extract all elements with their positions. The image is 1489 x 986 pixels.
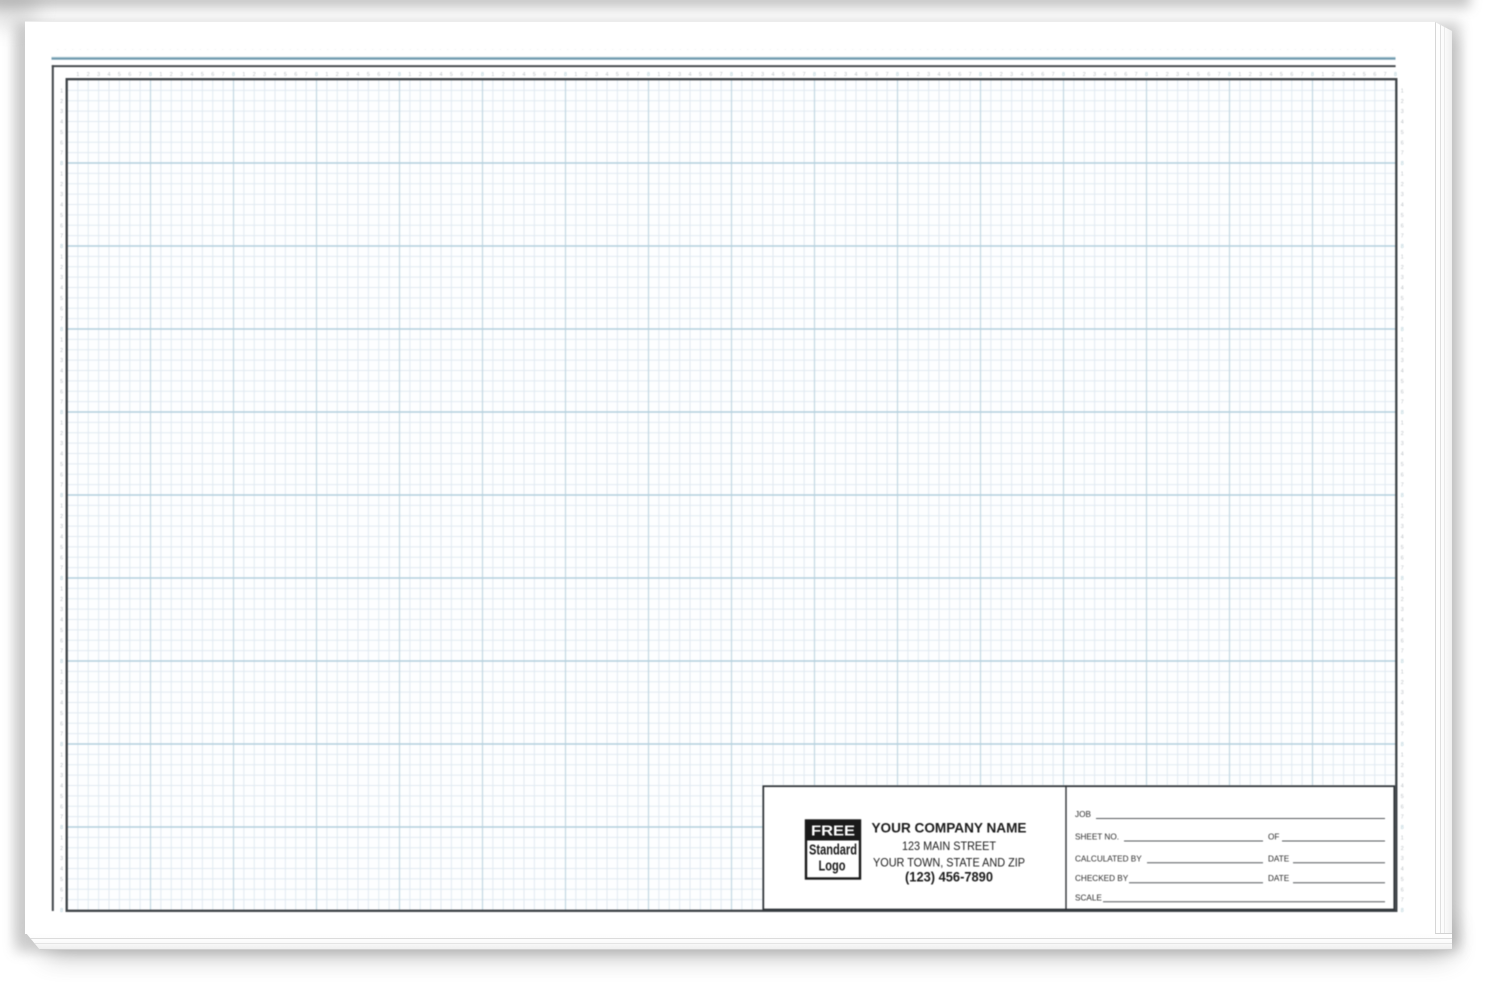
svg-text:6: 6 (1401, 804, 1404, 810)
svg-text:6: 6 (60, 887, 63, 893)
svg-text:7: 7 (1135, 71, 1138, 77)
svg-text:8: 8 (1401, 327, 1404, 333)
svg-text:7: 7 (60, 482, 63, 488)
svg-text:5: 5 (60, 462, 63, 468)
svg-text:6: 6 (60, 555, 63, 561)
svg-text:6: 6 (60, 306, 63, 312)
svg-text:7: 7 (803, 71, 806, 77)
svg-text:5: 5 (367, 71, 370, 77)
svg-text:SCALE: SCALE (1075, 893, 1102, 902)
svg-text:6: 6 (1290, 71, 1293, 77)
svg-text:CALCULATED BY: CALCULATED BY (1075, 854, 1142, 863)
svg-text:7: 7 (1401, 814, 1404, 820)
svg-text:6: 6 (1401, 306, 1404, 312)
svg-text:2: 2 (834, 71, 837, 77)
svg-text:3: 3 (1010, 71, 1013, 77)
svg-text:7: 7 (1301, 71, 1304, 77)
svg-text:8: 8 (1311, 71, 1314, 77)
svg-text:123 MAIN STREET: 123 MAIN STREET (902, 838, 996, 852)
svg-text:5: 5 (1031, 71, 1034, 77)
svg-text:8: 8 (1228, 71, 1231, 77)
svg-text:6: 6 (60, 140, 63, 146)
svg-text:7: 7 (1401, 897, 1404, 903)
svg-text:1: 1 (60, 88, 63, 94)
svg-text:7: 7 (554, 71, 557, 77)
svg-text:1: 1 (60, 835, 63, 841)
svg-text:8: 8 (564, 71, 567, 77)
svg-text:5: 5 (60, 794, 63, 800)
svg-text:1: 1 (574, 71, 577, 77)
svg-text:4: 4 (60, 617, 63, 623)
svg-text:1: 1 (408, 71, 411, 77)
svg-text:1: 1 (1401, 88, 1404, 94)
svg-text:Standard: Standard (809, 842, 857, 858)
svg-text:2: 2 (60, 679, 63, 685)
svg-text:YOUR TOWN, STATE AND ZIP: YOUR TOWN, STATE AND ZIP (873, 855, 1025, 869)
svg-text:1: 1 (1401, 171, 1404, 177)
svg-text:5: 5 (699, 71, 702, 77)
svg-text:8: 8 (60, 825, 63, 831)
svg-text:5: 5 (1197, 71, 1200, 77)
svg-text:3: 3 (512, 71, 515, 77)
svg-text:6: 6 (377, 71, 380, 77)
svg-text:2: 2 (585, 71, 588, 77)
svg-text:2: 2 (751, 71, 754, 77)
svg-text:4: 4 (274, 71, 277, 77)
svg-text:2: 2 (1083, 71, 1086, 77)
svg-text:6: 6 (626, 71, 629, 77)
svg-text:1: 1 (823, 71, 826, 77)
svg-text:1: 1 (60, 420, 63, 426)
svg-text:8: 8 (1401, 659, 1404, 665)
svg-text:2: 2 (170, 71, 173, 77)
svg-text:2: 2 (336, 71, 339, 77)
svg-text:5: 5 (533, 71, 536, 77)
svg-text:3: 3 (1401, 690, 1404, 696)
svg-text:4: 4 (1401, 783, 1404, 789)
svg-text:5: 5 (1401, 462, 1404, 468)
svg-text:8: 8 (60, 576, 63, 582)
svg-text:2: 2 (87, 71, 90, 77)
svg-text:4: 4 (60, 119, 63, 125)
svg-text:4: 4 (1104, 71, 1107, 77)
svg-text:4: 4 (60, 202, 63, 208)
svg-text:3: 3 (60, 690, 63, 696)
svg-text:5: 5 (60, 545, 63, 551)
svg-text:7: 7 (139, 71, 142, 77)
svg-text:1: 1 (657, 71, 660, 77)
svg-text:7: 7 (60, 233, 63, 239)
svg-text:1: 1 (60, 337, 63, 343)
svg-text:7: 7 (886, 71, 889, 77)
svg-text:1: 1 (325, 71, 328, 77)
svg-text:3: 3 (346, 71, 349, 77)
svg-text:7: 7 (60, 731, 63, 737)
svg-text:6: 6 (1373, 71, 1376, 77)
svg-text:1: 1 (1072, 71, 1075, 77)
svg-text:4: 4 (60, 534, 63, 540)
svg-text:2: 2 (1166, 71, 1169, 77)
svg-text:6: 6 (958, 71, 961, 77)
svg-text:3: 3 (595, 71, 598, 77)
svg-text:7: 7 (720, 71, 723, 77)
svg-text:7: 7 (388, 71, 391, 77)
svg-text:1: 1 (60, 586, 63, 592)
svg-text:6: 6 (1401, 887, 1404, 893)
svg-text:5: 5 (1280, 71, 1283, 77)
svg-text:6: 6 (60, 721, 63, 727)
svg-text:5: 5 (60, 628, 63, 634)
svg-text:3: 3 (1401, 358, 1404, 364)
svg-text:3: 3 (60, 607, 63, 613)
svg-text:6: 6 (60, 638, 63, 644)
svg-text:1: 1 (159, 71, 162, 77)
svg-text:7: 7 (1401, 150, 1404, 156)
svg-text:4: 4 (1270, 71, 1273, 77)
svg-text:1: 1 (1401, 503, 1404, 509)
svg-text:8: 8 (60, 327, 63, 333)
svg-text:1: 1 (740, 71, 743, 77)
svg-text:4: 4 (357, 71, 360, 77)
svg-text:4: 4 (440, 71, 443, 77)
svg-text:8: 8 (1401, 742, 1404, 748)
svg-text:4: 4 (60, 700, 63, 706)
svg-text:6: 6 (1401, 389, 1404, 395)
svg-text:1: 1 (1401, 420, 1404, 426)
svg-text:4: 4 (1401, 368, 1404, 374)
svg-text:8: 8 (60, 742, 63, 748)
svg-text:5: 5 (1114, 71, 1117, 77)
svg-text:5: 5 (60, 877, 63, 883)
svg-text:2: 2 (1401, 181, 1404, 187)
svg-text:7: 7 (471, 71, 474, 77)
svg-text:5: 5 (1401, 130, 1404, 136)
svg-text:5: 5 (60, 296, 63, 302)
svg-text:2: 2 (502, 71, 505, 77)
svg-text:8: 8 (1401, 244, 1404, 250)
svg-text:3: 3 (1401, 275, 1404, 281)
svg-text:1: 1 (1238, 71, 1241, 77)
svg-text:8: 8 (647, 71, 650, 77)
svg-text:5: 5 (616, 71, 619, 77)
svg-text:4: 4 (60, 783, 63, 789)
svg-text:4: 4 (1401, 119, 1404, 125)
svg-text:5: 5 (60, 379, 63, 385)
svg-text:2: 2 (60, 596, 63, 602)
svg-text:8: 8 (60, 161, 63, 167)
svg-text:1: 1 (242, 71, 245, 77)
svg-text:DATE: DATE (1268, 854, 1290, 863)
svg-text:6: 6 (60, 223, 63, 229)
svg-text:4: 4 (606, 71, 609, 77)
svg-text:7: 7 (60, 814, 63, 820)
svg-text:8: 8 (1401, 410, 1404, 416)
svg-text:7: 7 (637, 71, 640, 77)
svg-text:6: 6 (60, 804, 63, 810)
svg-text:8: 8 (60, 493, 63, 499)
svg-text:DATE: DATE (1268, 874, 1290, 883)
svg-text:8: 8 (1401, 825, 1404, 831)
svg-text:7: 7 (1401, 648, 1404, 654)
svg-text:6: 6 (60, 389, 63, 395)
svg-text:7: 7 (1401, 316, 1404, 322)
svg-text:1: 1 (1401, 586, 1404, 592)
svg-text:5: 5 (450, 71, 453, 77)
svg-text:7: 7 (1401, 233, 1404, 239)
svg-text:5: 5 (1363, 71, 1366, 77)
svg-text:2: 2 (1401, 347, 1404, 353)
svg-text:4: 4 (1353, 71, 1356, 77)
svg-text:5: 5 (1401, 711, 1404, 717)
svg-text:6: 6 (792, 71, 795, 77)
svg-text:6: 6 (1401, 638, 1404, 644)
svg-text:Logo: Logo (819, 858, 846, 874)
svg-text:6: 6 (543, 71, 546, 77)
svg-text:6: 6 (1207, 71, 1210, 77)
svg-text:2: 2 (60, 845, 63, 851)
svg-text:4: 4 (772, 71, 775, 77)
svg-text:6: 6 (128, 71, 131, 77)
svg-text:2: 2 (1401, 430, 1404, 436)
svg-text:3: 3 (678, 71, 681, 77)
svg-text:1: 1 (1401, 835, 1404, 841)
svg-text:2: 2 (1401, 845, 1404, 851)
svg-text:3: 3 (180, 71, 183, 77)
svg-text:5: 5 (1401, 545, 1404, 551)
svg-text:2: 2 (60, 98, 63, 104)
svg-text:5: 5 (1401, 877, 1404, 883)
svg-text:3: 3 (60, 773, 63, 779)
svg-text:3: 3 (60, 275, 63, 281)
svg-text:3: 3 (1401, 109, 1404, 115)
svg-text:3: 3 (60, 192, 63, 198)
svg-text:2: 2 (668, 71, 671, 77)
svg-text:7: 7 (1401, 731, 1404, 737)
svg-text:4: 4 (1401, 534, 1404, 540)
svg-text:7: 7 (1384, 71, 1387, 77)
svg-text:2: 2 (917, 71, 920, 77)
svg-text:2: 2 (60, 347, 63, 353)
svg-text:5: 5 (118, 71, 121, 77)
svg-text:4: 4 (938, 71, 941, 77)
svg-text:3: 3 (97, 71, 100, 77)
svg-text:4: 4 (1401, 285, 1404, 291)
svg-text:7: 7 (305, 71, 308, 77)
svg-text:3: 3 (60, 856, 63, 862)
svg-text:8: 8 (60, 908, 63, 914)
svg-text:2: 2 (1401, 762, 1404, 768)
svg-text:3: 3 (844, 71, 847, 77)
svg-text:2: 2 (1000, 71, 1003, 77)
svg-text:3: 3 (1401, 856, 1404, 862)
svg-text:5: 5 (284, 71, 287, 77)
svg-text:7: 7 (60, 897, 63, 903)
svg-text:YOUR COMPANY NAME: YOUR COMPANY NAME (872, 820, 1027, 835)
svg-text:1: 1 (1401, 254, 1404, 260)
svg-text:8: 8 (730, 71, 733, 77)
svg-text:1: 1 (60, 669, 63, 675)
svg-text:6: 6 (1401, 140, 1404, 146)
svg-text:OF: OF (1268, 832, 1279, 841)
svg-text:3: 3 (1259, 71, 1262, 77)
svg-text:6: 6 (709, 71, 712, 77)
svg-text:6: 6 (1124, 71, 1127, 77)
svg-text:8: 8 (232, 71, 235, 77)
svg-text:7: 7 (1401, 399, 1404, 405)
svg-text:8: 8 (60, 410, 63, 416)
svg-text:6: 6 (1041, 71, 1044, 77)
svg-text:7: 7 (60, 648, 63, 654)
svg-text:1: 1 (60, 171, 63, 177)
svg-text:7: 7 (60, 399, 63, 405)
svg-text:4: 4 (108, 71, 111, 77)
svg-text:5: 5 (1401, 379, 1404, 385)
svg-text:5: 5 (1401, 794, 1404, 800)
svg-text:8: 8 (1401, 908, 1404, 914)
svg-text:8: 8 (1062, 71, 1065, 77)
svg-text:3: 3 (429, 71, 432, 77)
svg-text:6: 6 (875, 71, 878, 77)
svg-text:7: 7 (222, 71, 225, 77)
svg-text:2: 2 (1401, 98, 1404, 104)
svg-text:7: 7 (1218, 71, 1221, 77)
svg-text:2: 2 (253, 71, 256, 77)
svg-text:3: 3 (761, 71, 764, 77)
svg-text:4: 4 (1401, 202, 1404, 208)
svg-text:7: 7 (60, 565, 63, 571)
svg-text:7: 7 (1052, 71, 1055, 77)
svg-text:5: 5 (201, 71, 204, 77)
svg-text:6: 6 (60, 472, 63, 478)
svg-text:5: 5 (60, 130, 63, 136)
svg-text:2: 2 (1249, 71, 1252, 77)
svg-text:1: 1 (1155, 71, 1158, 77)
svg-text:3: 3 (60, 441, 63, 447)
svg-text:3: 3 (1093, 71, 1096, 77)
svg-text:4: 4 (1401, 700, 1404, 706)
svg-text:8: 8 (896, 71, 899, 77)
svg-text:6: 6 (211, 71, 214, 77)
svg-text:6: 6 (294, 71, 297, 77)
svg-text:2: 2 (1401, 679, 1404, 685)
svg-text:8: 8 (481, 71, 484, 77)
svg-text:5: 5 (60, 711, 63, 717)
svg-text:3: 3 (1401, 441, 1404, 447)
svg-text:3: 3 (263, 71, 266, 77)
svg-text:3: 3 (60, 524, 63, 530)
svg-text:5: 5 (782, 71, 785, 77)
svg-text:3: 3 (1342, 71, 1345, 77)
svg-text:8: 8 (149, 71, 152, 77)
svg-text:1: 1 (1401, 752, 1404, 758)
svg-text:1: 1 (491, 71, 494, 77)
svg-text:4: 4 (689, 71, 692, 77)
svg-text:3: 3 (60, 358, 63, 364)
svg-text:(123) 456-7890: (123) 456-7890 (905, 868, 993, 884)
svg-text:3: 3 (927, 71, 930, 77)
svg-text:1: 1 (60, 752, 63, 758)
svg-text:6: 6 (460, 71, 463, 77)
svg-text:4: 4 (60, 285, 63, 291)
svg-text:2: 2 (60, 430, 63, 436)
svg-text:2: 2 (60, 264, 63, 270)
svg-text:8: 8 (1394, 71, 1397, 77)
svg-text:FREE: FREE (811, 823, 855, 839)
svg-text:2: 2 (60, 762, 63, 768)
svg-text:7: 7 (60, 150, 63, 156)
svg-text:4: 4 (60, 451, 63, 457)
svg-text:1: 1 (1321, 71, 1324, 77)
svg-text:2: 2 (1401, 596, 1404, 602)
svg-text:6: 6 (1401, 721, 1404, 727)
svg-text:4: 4 (60, 866, 63, 872)
svg-text:4: 4 (1187, 71, 1190, 77)
svg-text:4: 4 (191, 71, 194, 77)
svg-text:2: 2 (1401, 513, 1404, 519)
svg-text:7: 7 (1401, 565, 1404, 571)
svg-text:5: 5 (1401, 628, 1404, 634)
svg-text:SHEET NO.: SHEET NO. (1075, 832, 1119, 841)
svg-text:8: 8 (315, 71, 318, 77)
svg-text:1: 1 (60, 254, 63, 260)
svg-text:7: 7 (1401, 482, 1404, 488)
svg-text:7: 7 (969, 71, 972, 77)
svg-text:2: 2 (60, 181, 63, 187)
svg-text:JOB: JOB (1075, 810, 1091, 819)
svg-text:2: 2 (419, 71, 422, 77)
svg-text:8: 8 (1401, 493, 1404, 499)
svg-text:8: 8 (60, 244, 63, 250)
svg-text:5: 5 (1401, 296, 1404, 302)
svg-text:4: 4 (1401, 451, 1404, 457)
svg-text:1: 1 (989, 71, 992, 77)
svg-text:6: 6 (1401, 223, 1404, 229)
svg-text:4: 4 (60, 368, 63, 374)
svg-text:5: 5 (865, 71, 868, 77)
svg-text:6: 6 (1401, 472, 1404, 478)
svg-text:4: 4 (523, 71, 526, 77)
svg-text:5: 5 (948, 71, 951, 77)
svg-text:8: 8 (1145, 71, 1148, 77)
svg-text:4: 4 (1401, 866, 1404, 872)
svg-text:1: 1 (60, 503, 63, 509)
svg-text:5: 5 (60, 213, 63, 219)
svg-text:CHECKED BY: CHECKED BY (1075, 874, 1129, 883)
svg-text:8: 8 (979, 71, 982, 77)
svg-text:3: 3 (1176, 71, 1179, 77)
svg-text:4: 4 (1021, 71, 1024, 77)
svg-text:1: 1 (1401, 669, 1404, 675)
svg-text:1: 1 (76, 71, 79, 77)
svg-text:3: 3 (60, 109, 63, 115)
svg-text:4: 4 (855, 71, 858, 77)
svg-text:6: 6 (1401, 555, 1404, 561)
svg-text:2: 2 (60, 513, 63, 519)
svg-text:8: 8 (60, 659, 63, 665)
svg-text:1: 1 (906, 71, 909, 77)
svg-text:2: 2 (1401, 264, 1404, 270)
svg-text:3: 3 (1401, 524, 1404, 530)
svg-text:3: 3 (1401, 773, 1404, 779)
svg-text:7: 7 (60, 316, 63, 322)
svg-text:2: 2 (1332, 71, 1335, 77)
svg-text:8: 8 (813, 71, 816, 77)
svg-text:3: 3 (1401, 607, 1404, 613)
svg-text:8: 8 (398, 71, 401, 77)
svg-text:8: 8 (1401, 576, 1404, 582)
svg-text:1: 1 (1401, 337, 1404, 343)
svg-text:3: 3 (1401, 192, 1404, 198)
